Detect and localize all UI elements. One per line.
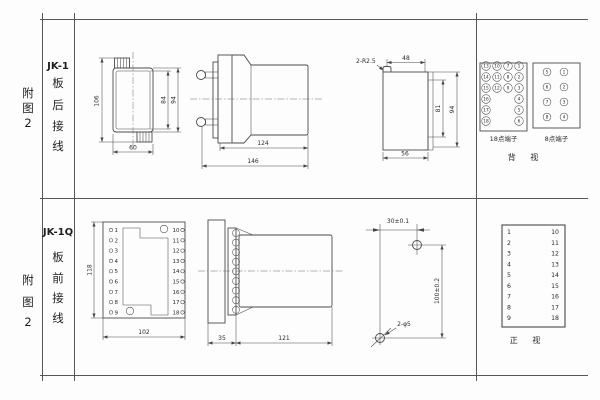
terminal-num: 7	[115, 290, 119, 296]
term18-num: 10	[494, 64, 500, 70]
term18-num: 11	[494, 75, 500, 81]
terminal-num: 2	[115, 238, 119, 244]
terminal-num: 11	[173, 238, 180, 244]
table-num: 9	[507, 315, 511, 322]
table-num: 16	[551, 294, 559, 301]
jk1q-side-body	[198, 220, 343, 323]
wiring-label-char: 线	[42, 311, 74, 325]
jk1-panel-body	[383, 67, 433, 151]
table-num: 10	[551, 229, 559, 236]
front-view-label: 正 视	[510, 335, 547, 345]
wiring-label-char: 接	[42, 119, 74, 133]
term8-num: 3	[563, 100, 566, 106]
table-num: 8	[507, 304, 511, 311]
terminal-num: 9	[115, 310, 119, 316]
figure-label-char: 附	[10, 273, 46, 287]
jk1-side-view: 124 146	[190, 40, 325, 172]
terminal-num: 6	[115, 280, 119, 286]
term18-num: 2	[518, 75, 521, 81]
model-label-jk1: JK-1	[41, 61, 75, 72]
jk1-side-body	[190, 55, 322, 143]
term18-num: 5	[518, 108, 521, 114]
jk1q-side-view: 35 121	[195, 210, 345, 350]
dim-35: 35	[218, 335, 226, 342]
table-num: 11	[551, 240, 559, 247]
dim-121: 121	[278, 335, 290, 342]
dim-94b: 94	[449, 106, 456, 114]
terminal-num: 12	[173, 249, 180, 255]
dim-81: 81	[435, 105, 442, 113]
term8-num: 1	[563, 70, 566, 76]
jk1q-drill-view: 30±0.1 100±0.2 2-φ5	[360, 210, 470, 350]
dim-56: 56	[401, 151, 409, 158]
wiring-label-char: 前	[42, 271, 74, 285]
figure-label-char: 附	[10, 86, 46, 100]
table-num: 2	[507, 240, 511, 247]
table-num: 18	[551, 315, 559, 322]
terminal-num: 15	[173, 280, 180, 286]
term18-num: 3	[518, 86, 521, 92]
dim-124: 124	[257, 140, 269, 147]
terminal-num: 17	[173, 300, 180, 306]
figure-label-char: 图	[10, 101, 46, 115]
dim-100: 100±0.2	[434, 278, 441, 304]
jk1-panel-view: 2-R2.5 48 81 94 56	[350, 45, 470, 163]
term18-num: 1	[518, 64, 521, 70]
terminal-num: 14	[173, 269, 180, 275]
dim-118: 118	[87, 264, 94, 276]
table-num: 15	[551, 283, 559, 290]
terminal-num: 5	[115, 269, 119, 275]
table-num: 14	[551, 272, 559, 279]
wiring-label-char: 后	[42, 98, 74, 112]
term18-num: 17	[483, 108, 489, 114]
term18-label: 18点端子	[490, 134, 518, 143]
terminal-num: 10	[173, 228, 180, 234]
drawing-sheet: 附 图 2 JK-1 板 后 接 线 附 图 2 JK-1Q 板 前 接 线 1…	[0, 0, 600, 400]
terminal-num: 13	[173, 259, 180, 265]
wiring-label-char: 板	[42, 250, 74, 264]
terminal-num: 1	[115, 228, 119, 234]
term8-num: 6	[546, 85, 549, 91]
terminal-num: 18	[173, 310, 180, 316]
holes-label: 2-φ5	[397, 321, 411, 328]
terminal-num: 4	[115, 259, 119, 265]
figure-label-char: 2	[10, 116, 46, 130]
term18-num: 12	[494, 86, 500, 92]
table-num: 17	[551, 304, 559, 311]
jk1q-right-terminals	[181, 228, 184, 314]
grid-line-bottom	[40, 375, 588, 376]
wiring-label-char: 板	[42, 76, 74, 90]
terminal-block-18: 13 14 15 16 17 18 10 11 12 7 8 9 1 2 3 4…	[480, 62, 527, 143]
table-num: 4	[507, 261, 511, 268]
term18-num: 7	[507, 64, 510, 70]
term8-num: 5	[546, 70, 549, 76]
dim-106: 106	[94, 95, 101, 107]
term18-num: 16	[483, 97, 489, 103]
term8-num: 4	[563, 115, 566, 121]
dim-60: 60	[129, 145, 137, 152]
term8-num: 8	[546, 115, 549, 121]
dim-84: 84	[161, 96, 168, 104]
table-num: 5	[507, 272, 511, 279]
mounting-hole	[126, 307, 134, 315]
dim-94: 94	[171, 96, 178, 104]
table-num: 1	[507, 229, 511, 236]
table-num: 7	[507, 294, 511, 301]
jk1-front-view: 106 84 94 60	[90, 48, 195, 163]
term18-num: 4	[518, 97, 521, 103]
dim-48: 48	[402, 55, 410, 62]
drill-dimensions: 30±0.1 100±0.2 2-φ5	[366, 218, 446, 347]
wiring-label-char: 接	[42, 291, 74, 305]
jk1q-front-dimensions: 118 102	[87, 222, 186, 340]
jk1-front-body	[113, 52, 153, 150]
dim-146: 146	[247, 158, 259, 165]
term18-num: 14	[483, 75, 489, 81]
term18-num: 18	[483, 119, 489, 125]
term18-num: 6	[518, 119, 521, 125]
figure-label-char: 2	[10, 315, 46, 329]
term8-num: 7	[546, 100, 549, 106]
jk1q-side-dimensions: 35 121	[208, 307, 332, 346]
terminal-block-8: 5 6 7 8 1 2 3 4 8点端子	[533, 63, 580, 143]
grid-line-top	[40, 19, 588, 20]
terminal-num: 16	[173, 290, 180, 296]
table-num: 13	[551, 261, 559, 268]
terminal-num: 3	[115, 249, 119, 255]
grid-line-middle	[40, 198, 588, 199]
jk1q-table-view: 1 2 3 4 5 6 7 8 9 10 11 12 13 14 15 16 1…	[495, 218, 595, 348]
table-num: 3	[507, 251, 511, 258]
dim-30: 30±0.1	[387, 218, 409, 225]
wiring-label-char: 线	[42, 139, 74, 153]
term8-label: 8点端子	[545, 134, 569, 143]
terminal-num: 8	[115, 300, 119, 306]
dim-102: 102	[138, 329, 150, 336]
jk1-panel-dimensions: 2-R2.5 48 81 94 56	[356, 55, 460, 161]
term18-num: 9	[507, 86, 510, 92]
table-num: 12	[551, 251, 559, 258]
term18-num: 15	[483, 86, 489, 92]
grid-line-v3	[476, 13, 477, 381]
term18-num: 8	[507, 75, 510, 81]
corner-radius-label: 2-R2.5	[356, 58, 376, 65]
jk1q-left-terminals	[109, 228, 112, 314]
model-label-jk1q: JK-1Q	[41, 227, 75, 238]
term8-num: 2	[563, 85, 566, 91]
term18-num: 13	[483, 64, 489, 70]
rear-view-label: 背 视	[508, 152, 545, 162]
table-num: 6	[507, 283, 511, 290]
jk1q-front-view: 1 2 3 4 5 6 7 8 9 10 11 12 13 14 15 16 1…	[88, 215, 198, 345]
mounting-hole	[160, 225, 168, 233]
jk1-terminal-view: 13 14 15 16 17 18 10 11 12 7 8 9 1 2 3 4…	[478, 58, 590, 168]
figure-label-char: 图	[10, 295, 46, 309]
